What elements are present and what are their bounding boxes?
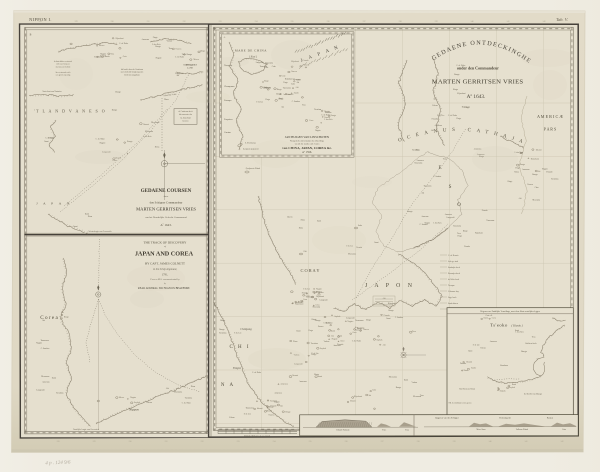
- svg-text:Langezaki: Langezaki: [320, 299, 328, 302]
- svg-text:Firando: Firando: [460, 363, 466, 365]
- svg-text:Oki: Oki: [304, 251, 307, 253]
- svg-text:Kijnokuni: Kijnokuni: [316, 296, 324, 298]
- svg-text:( Kiusiu ): ( Kiusiu ): [511, 324, 522, 328]
- svg-text:Duitsche Mijlen 15 in een Graa: Duitsche Mijlen 15 in een Graad: [244, 436, 270, 438]
- svg-text:I. dos Reis: I. dos Reis: [143, 136, 152, 138]
- svg-text:Fingo: Fingo: [283, 81, 287, 84]
- svg-text:Bingo: Bingo: [366, 319, 371, 322]
- svg-text:Bingo: Bingo: [64, 316, 69, 319]
- svg-text:Aki: Aki: [383, 344, 386, 347]
- svg-text:Vaste kust van Tartarien: Vaste kust van Tartarien: [42, 91, 61, 93]
- svg-text:Firando: Firando: [302, 292, 308, 294]
- svg-text:Eiland Fatsisio: Eiland Fatsisio: [336, 430, 350, 432]
- svg-text:Meaxuma: Meaxuma: [151, 122, 159, 124]
- svg-text:Itami: Itami: [317, 221, 321, 223]
- svg-text:COMPAGNIES: COMPAGNIES: [183, 64, 198, 67]
- svg-text:Sado: Sado: [358, 225, 362, 227]
- svg-text:Xima: Xima: [514, 172, 519, 174]
- svg-text:Xima: Xima: [299, 227, 303, 229]
- svg-text:Fokjen: Fokjen: [232, 366, 242, 370]
- svg-text:Amacusa: Amacusa: [42, 380, 50, 383]
- svg-text:Kusten: Kusten: [547, 418, 554, 420]
- svg-text:F. de Lio: F. de Lio: [473, 344, 480, 346]
- svg-text:Itami: Itami: [331, 330, 336, 332]
- svg-text:Vertoning der: Vertoning der: [499, 417, 511, 420]
- svg-text:Vulcan: Vulcan: [146, 402, 152, 404]
- svg-text:Itami: Itami: [468, 351, 472, 353]
- svg-text:136: 136: [345, 441, 348, 443]
- svg-text:C. de Nabo: C. de Nabo: [45, 138, 54, 140]
- svg-text:Tanaxuma: Tanaxuma: [283, 87, 291, 89]
- svg-text:137: 137: [363, 21, 366, 23]
- svg-text:MARTEN GERRITSEN VRIES: MARTEN GERRITSEN VRIES: [432, 79, 524, 86]
- svg-text:C. de Nabo: C. de Nabo: [252, 372, 261, 374]
- svg-text:Tacatima: Tacatima: [314, 109, 321, 111]
- svg-text:Meaxuma: Meaxuma: [348, 253, 356, 255]
- svg-text:Meaxuma: Meaxuma: [41, 376, 49, 378]
- svg-text:Vulcan: Vulcan: [324, 341, 330, 343]
- svg-text:Quelpaerts Eiland: Quelpaerts Eiland: [246, 168, 260, 170]
- svg-text:Bingo: Bingo: [285, 411, 290, 414]
- svg-text:Tosa: Tosa: [302, 104, 306, 106]
- svg-text:Xima: Xima: [88, 216, 93, 218]
- svg-text:Meac Sima: Meac Sima: [476, 429, 485, 431]
- svg-text:Idzumi: Idzumi: [143, 124, 149, 126]
- svg-text:de Witte hoek: de Witte hoek: [448, 279, 459, 281]
- svg-text:Nagato: Nagato: [99, 141, 105, 144]
- svg-text:Nagato: Nagato: [316, 287, 322, 290]
- svg-text:Fingo: Fingo: [457, 117, 462, 120]
- svg-text:Chekjang: Chekjang: [240, 327, 252, 331]
- svg-text:139: 139: [453, 441, 456, 443]
- svg-text:Aki: Aki: [433, 97, 436, 100]
- svg-text:J A P O N: J A P O N: [365, 283, 415, 289]
- svg-text:O: O: [457, 203, 461, 208]
- svg-text:Itami: Itami: [374, 242, 378, 244]
- svg-text:C. de Nabo: C. de Nabo: [96, 138, 105, 140]
- svg-text:Langezaki: Langezaki: [346, 317, 355, 320]
- svg-text:F. de Lio: F. de Lio: [311, 353, 318, 355]
- svg-text:Xima: Xima: [325, 323, 330, 325]
- svg-text:Tanaxuma: Tanaxuma: [486, 220, 494, 222]
- svg-text:door: door: [164, 195, 169, 198]
- svg-text:Kijnokuni: Kijnokuni: [457, 93, 466, 95]
- svg-text:133: 133: [219, 21, 222, 23]
- svg-text:Sanduijts hoek: Sanduijts hoek: [448, 267, 460, 269]
- svg-text:Osacca: Osacca: [318, 326, 324, 328]
- svg-text:Amacusa: Amacusa: [522, 168, 530, 171]
- svg-text:Tacatima: Tacatima: [185, 397, 192, 399]
- svg-text:Tacatima: Tacatima: [324, 112, 331, 114]
- svg-text:135: 135: [309, 441, 312, 443]
- svg-text:Itami: Itami: [279, 98, 283, 100]
- svg-text:Sando: Sando: [294, 93, 299, 95]
- svg-text:Bungo: Bungo: [112, 109, 117, 112]
- svg-text:Cava: Cava: [492, 318, 496, 320]
- svg-text:Bungo: Bungo: [187, 53, 192, 56]
- svg-text:E: E: [438, 166, 441, 171]
- svg-text:Saykok: Saykok: [134, 402, 140, 404]
- svg-text:Firando: Firando: [270, 406, 276, 408]
- svg-text:Bingo: Bingo: [220, 319, 225, 322]
- svg-text:Saykok: Saykok: [509, 387, 515, 389]
- svg-text:Kijnokuni: Kijnokuni: [388, 303, 396, 305]
- svg-text:Nippon: Nippon: [128, 408, 139, 412]
- svg-text:130: 130: [129, 441, 132, 443]
- svg-text:C. Sumbor: C. Sumbor: [419, 224, 428, 226]
- svg-text:Westerlengte van Greenwich: Westerlengte van Greenwich: [88, 230, 111, 233]
- svg-text:Amacusa: Amacusa: [445, 213, 452, 216]
- svg-text:Wegens eene Zuidelijke Verzeil: Wegens eene Zuidelijke Verzeilinge, moet…: [480, 310, 540, 313]
- svg-text:F. de Lio: F. de Lio: [437, 115, 444, 117]
- svg-text:( Kust ): ( Kust ): [249, 56, 257, 59]
- svg-text:Aº 1596.: Aº 1596.: [302, 151, 312, 154]
- svg-text:S: S: [449, 185, 452, 190]
- svg-text:Itami: Itami: [44, 141, 49, 143]
- svg-text:Langezaki: Langezaki: [256, 61, 264, 64]
- svg-text:Cava: Cava: [352, 332, 356, 334]
- svg-text:Bungo: Bungo: [532, 173, 537, 176]
- svg-text:I. dos Reis: I. dos Reis: [433, 223, 441, 225]
- svg-text:Bingo: Bingo: [314, 373, 319, 376]
- svg-text:van het Noordelijke Gedeelte C: van het Noordelijke Gedeelte Comanavand: [145, 216, 187, 219]
- svg-text:Meaco: Meaco: [119, 397, 124, 399]
- svg-text:Bungo: Bungo: [454, 73, 459, 76]
- svg-text:Idzumi: Idzumi: [536, 150, 542, 152]
- svg-text:Itami: Itami: [515, 330, 519, 332]
- svg-text:140: 140: [489, 441, 492, 443]
- svg-text:Bingo: Bingo: [200, 49, 205, 52]
- svg-text:Chanquam: Chanquam: [224, 85, 234, 88]
- svg-text:132: 132: [183, 21, 186, 23]
- svg-text:Idzumi: Idzumi: [466, 362, 472, 364]
- svg-text:Boomtjes hoek: Boomtjes hoek: [448, 273, 460, 275]
- svg-text:Goto: Goto: [372, 389, 376, 391]
- svg-text:Aki: Aki: [296, 81, 299, 84]
- svg-text:Amacusa: Amacusa: [490, 340, 497, 343]
- svg-text:C. de Nabo: C. de Nabo: [182, 402, 191, 404]
- svg-text:Nagato: Nagato: [130, 396, 136, 399]
- svg-text:Osacca: Osacca: [287, 217, 293, 219]
- svg-text:Goto: Goto: [281, 75, 285, 77]
- svg-text:Bungo: Bungo: [396, 386, 401, 389]
- svg-text:Fingo: Fingo: [458, 234, 462, 237]
- svg-text:Aki: Aki: [42, 319, 45, 322]
- svg-text:Tacatima: Tacatima: [311, 343, 318, 345]
- svg-text:Amacusa: Amacusa: [299, 380, 307, 383]
- svg-text:F. de Lio: F. de Lio: [234, 332, 241, 334]
- svg-text:C O R A Y: C O R A Y: [300, 268, 320, 273]
- svg-text:Firando: Firando: [482, 210, 488, 212]
- svg-text:131: 131: [147, 21, 150, 23]
- svg-text:'T L A N D V A N E S O: 'T L A N D V A N E S O: [34, 109, 106, 114]
- svg-text:Vulcan: Vulcan: [412, 382, 418, 384]
- svg-text:N A: N A: [221, 383, 235, 388]
- svg-text:Foquiem: Foquiem: [224, 118, 233, 121]
- svg-text:Amacusa: Amacusa: [142, 38, 150, 41]
- svg-text:J A P A N: J A P A N: [36, 202, 72, 206]
- svg-text:C. de Kennis: C. de Kennis: [448, 255, 459, 257]
- svg-text:Van Diemens Straat: Van Diemens Straat: [459, 389, 475, 391]
- svg-text:Aº 1643.: Aº 1643.: [160, 223, 171, 227]
- svg-text:Itami: Itami: [512, 384, 517, 386]
- svg-text:Nagato: Nagato: [542, 168, 548, 171]
- svg-text:Meaco: Meaco: [194, 59, 199, 61]
- svg-text:139: 139: [435, 21, 438, 23]
- svg-text:Bungo: Bungo: [331, 114, 336, 117]
- svg-text:Aki: Aki: [280, 404, 283, 407]
- svg-text:Nagato: Nagato: [274, 400, 280, 403]
- svg-text:C. Sumbor: C. Sumbor: [395, 317, 404, 319]
- svg-text:Langezaki: Langezaki: [36, 389, 45, 392]
- svg-text:Amacusa: Amacusa: [434, 124, 442, 127]
- svg-text:Nagato: Nagato: [315, 129, 321, 132]
- svg-text:Firando: Firando: [546, 172, 552, 174]
- svg-text:Cava: Cava: [309, 120, 313, 122]
- svg-text:4 p . 124 9/6: 4 p . 124 9/6: [45, 461, 71, 467]
- svg-text:Saykok: Saykok: [334, 316, 340, 318]
- svg-text:128: 128: [39, 21, 42, 23]
- svg-text:135: 135: [291, 21, 294, 23]
- svg-text:JAN HUIGEN VAN LINSCHOTEN: JAN HUIGEN VAN LINSCHOTEN: [285, 135, 330, 139]
- svg-text:Aki: Aki: [383, 297, 386, 300]
- svg-text:C H I: C H I: [229, 345, 250, 350]
- svg-text:F. de Lio: F. de Lio: [244, 414, 251, 416]
- svg-text:Goto: Goto: [562, 429, 566, 431]
- svg-text:Bingo: Bingo: [463, 229, 468, 232]
- svg-text:Amacusa: Amacusa: [421, 215, 428, 218]
- svg-text:Xima: Xima: [293, 341, 298, 343]
- svg-text:Xima: Xima: [301, 219, 305, 221]
- svg-text:Kijnokuni: Kijnokuni: [354, 396, 363, 398]
- svg-text:P A R S: P A R S: [544, 127, 556, 132]
- svg-text:Osacca: Osacca: [268, 414, 274, 416]
- svg-text:Meaxuma: Meaxuma: [313, 307, 321, 309]
- svg-text:NB. de Zuidkust is niet gezien: NB. de Zuidkust is niet gezien: [449, 402, 472, 405]
- svg-text:Cantan: Cantan: [224, 131, 232, 134]
- svg-text:Itami: Itami: [387, 318, 391, 320]
- svg-text:bevaren: bevaren: [183, 121, 189, 123]
- svg-text:Xima: Xima: [463, 370, 468, 372]
- svg-text:Tosa: Tosa: [405, 429, 409, 431]
- svg-text:Fingo: Fingo: [264, 80, 269, 83]
- svg-text:THE TRACK OF DISCOVERY: THE TRACK OF DISCOVERY: [144, 241, 188, 245]
- svg-text:GEDAENE COURSEN: GEDAENE COURSEN: [141, 189, 192, 194]
- svg-text:14 Junij 1643: 14 Junij 1643: [180, 117, 190, 119]
- svg-text:C. de Nabo: C. de Nabo: [321, 115, 330, 117]
- svg-text:Osacca: Osacca: [291, 71, 297, 73]
- svg-text:Goto eil.: Goto eil.: [486, 315, 493, 317]
- svg-text:Itami: Itami: [73, 226, 78, 228]
- svg-text:Amacusa: Amacusa: [274, 392, 282, 395]
- svg-text:Oostelijke lengte van Greenwic: Oostelijke lengte van Greenwich: [73, 428, 99, 431]
- svg-text:Bingo: Bingo: [453, 88, 458, 91]
- svg-text:F. de Lio: F. de Lio: [256, 101, 263, 103]
- svg-text:Tanaxuma: Tanaxuma: [355, 320, 363, 322]
- svg-text:Meaxuma: Meaxuma: [293, 79, 301, 81]
- svg-text:I. Fermosa: I. Fermosa: [245, 142, 257, 145]
- svg-text:Aki: Aki: [519, 197, 522, 200]
- svg-text:Meaxuma: Meaxuma: [174, 391, 182, 393]
- svg-text:C. de Nabo: C. de Nabo: [175, 56, 184, 58]
- svg-text:Bingo: Bingo: [277, 88, 282, 91]
- svg-text:Tacatima: Tacatima: [219, 332, 226, 334]
- svg-text:133: 133: [237, 441, 240, 443]
- svg-text:Cava: Cava: [303, 299, 307, 301]
- svg-text:de Castricum heeft: de Castricum heeft: [178, 110, 193, 113]
- svg-text:Itami: Itami: [404, 379, 409, 381]
- svg-text:Fingo: Fingo: [465, 106, 470, 109]
- svg-text:Bungo: Bungo: [315, 319, 320, 322]
- svg-text:Idzumi: Idzumi: [350, 400, 356, 402]
- svg-text:140: 140: [471, 21, 474, 23]
- svg-text:Vulcan: Vulcan: [432, 105, 438, 107]
- svg-text:Bungo: Bungo: [127, 140, 132, 143]
- svg-text:Osacca: Osacca: [527, 184, 533, 186]
- svg-text:Vries: Vries: [382, 429, 386, 431]
- svg-text:Aº 1643.: Aº 1643.: [467, 94, 486, 100]
- svg-text:134: 134: [273, 441, 276, 443]
- svg-text:Tosa: Tosa: [110, 53, 114, 55]
- svg-text:Bungo: Bungo: [389, 309, 394, 312]
- svg-text:Itami: Itami: [318, 376, 323, 378]
- svg-text:C. Sumbor: C. Sumbor: [41, 348, 50, 350]
- svg-text:Tanaxuma: Tanaxuma: [40, 340, 48, 342]
- svg-text:Saykok: Saykok: [376, 340, 382, 342]
- svg-text:dit vaarwater den: dit vaarwater den: [179, 114, 192, 116]
- svg-text:Itami: Itami: [338, 335, 343, 337]
- svg-text:Tab. V.: Tab. V.: [556, 17, 569, 22]
- svg-text:Tosa: Tosa: [443, 159, 447, 161]
- svg-text:Lage hoek: Lage hoek: [448, 296, 456, 299]
- svg-text:Stichters hoek: Stichters hoek: [525, 343, 536, 345]
- svg-text:142: 142: [543, 21, 546, 23]
- svg-text:MARE DE CHINA: MARE DE CHINA: [235, 49, 267, 53]
- svg-text:I. dos Reis: I. dos Reis: [324, 119, 332, 121]
- svg-text:Aki: Aki: [421, 191, 424, 194]
- svg-text:Aki: Aki: [331, 335, 334, 338]
- svg-text:Tosa: Tosa: [412, 331, 416, 333]
- svg-text:Bungo: Bungo: [407, 210, 412, 213]
- svg-text:Amacusa: Amacusa: [333, 344, 341, 347]
- svg-text:Tosa: Tosa: [532, 337, 536, 339]
- svg-text:den Schipper Commandeur: den Schipper Commandeur: [150, 201, 183, 205]
- svg-text:Jedo gr. stad: Jedo gr. stad: [448, 260, 458, 263]
- svg-text:I. dos Reis: I. dos Reis: [516, 332, 524, 334]
- svg-text:Simabara: Simabara: [500, 365, 508, 367]
- svg-text:Tanaxuma: Tanaxuma: [424, 186, 432, 188]
- svg-text:de Bocht van Bungo: de Bocht van Bungo: [524, 393, 543, 396]
- svg-text:Nagato: Nagato: [100, 52, 106, 55]
- svg-text:Meaco: Meaco: [318, 292, 323, 294]
- svg-text:Amacusa: Amacusa: [355, 329, 363, 332]
- svg-text:C. de Nabo: C. de Nabo: [119, 43, 128, 45]
- svg-text:Xima: Xima: [164, 99, 169, 101]
- svg-text:Cabo: Cabo: [535, 187, 539, 189]
- svg-text:Meaco: Meaco: [99, 45, 104, 47]
- svg-text:Bungo: Bungo: [115, 91, 120, 94]
- svg-text:Westgedeelte uitvoerstaaken de: Westgedeelte uitvoerstaaken der Afbeeldi…: [290, 140, 324, 143]
- svg-text:Aki: Aki: [166, 387, 169, 390]
- svg-text:Kijnokuni: Kijnokuni: [285, 78, 293, 80]
- svg-text:Fingo: Fingo: [515, 167, 520, 170]
- svg-text:Vulcan: Vulcan: [229, 417, 235, 419]
- svg-text:C. de Nabo: C. de Nabo: [456, 65, 465, 67]
- svg-text:Vulkaan Eiland: Vulkaan Eiland: [516, 429, 528, 431]
- svg-text:Osacca: Osacca: [176, 48, 182, 50]
- svg-text:F. de Lio: F. de Lio: [303, 288, 310, 290]
- svg-text:Cabo: Cabo: [264, 87, 268, 89]
- svg-text:Cabo: Cabo: [264, 67, 268, 69]
- svg-text:Kijnokuni: Kijnokuni: [116, 38, 125, 40]
- svg-text:128: 128: [57, 441, 60, 443]
- svg-text:Tanaxuma: Tanaxuma: [453, 225, 461, 227]
- svg-text:Nagato: Nagato: [332, 337, 338, 340]
- svg-text:Tacatima: Tacatima: [551, 179, 558, 181]
- svg-text:A M E R I C Æ: A M E R I C Æ: [537, 114, 563, 119]
- svg-text:Aki: Aki: [431, 129, 434, 132]
- svg-text:C. de Nabo: C. de Nabo: [352, 341, 361, 343]
- svg-text:142: 142: [561, 441, 564, 443]
- svg-text:Amacusa: Amacusa: [280, 382, 288, 385]
- svg-text:137: 137: [381, 441, 384, 443]
- svg-text:Tanaxuma: Tanaxuma: [414, 163, 422, 165]
- svg-text:Meaxuma: Meaxuma: [389, 377, 397, 379]
- svg-text:Opgaven van den Schipper: Opgaven van den Schipper: [435, 417, 459, 420]
- svg-text:Firando: Firando: [432, 119, 438, 121]
- svg-text:134: 134: [255, 21, 258, 23]
- svg-text:132: 132: [201, 441, 204, 443]
- svg-text:129: 129: [93, 441, 96, 443]
- svg-text:doch niet aangedaan: doch niet aangedaan: [124, 73, 139, 76]
- svg-text:Kijnokuni: Kijnokuni: [531, 158, 540, 160]
- svg-text:Ts'eoko: Ts'eoko: [490, 323, 508, 328]
- svg-text:Sando: Sando: [471, 368, 476, 370]
- svg-text:Nagato: Nagato: [156, 56, 162, 59]
- svg-text:Sand duinen: Sand duinen: [448, 303, 458, 305]
- svg-text:Cabo: Cabo: [272, 66, 276, 68]
- svg-text:Bungo: Bungo: [219, 328, 224, 331]
- svg-text:Itami: Itami: [52, 378, 57, 380]
- svg-text:Nagato: Nagato: [36, 342, 42, 345]
- svg-text:op verscheide hoogten gezien: op verscheide hoogten gezien: [121, 71, 143, 74]
- svg-text:Itami: Itami: [297, 330, 301, 332]
- svg-text:Fingo: Fingo: [309, 329, 313, 332]
- svg-text:138: 138: [399, 21, 402, 23]
- svg-text:Firando: Firando: [464, 246, 470, 248]
- svg-text:Tosa: Tosa: [168, 48, 172, 50]
- svg-text:Tacatima: Tacatima: [412, 149, 419, 151]
- svg-text:C. Sumbor: C. Sumbor: [292, 101, 301, 103]
- svg-text:Vulcan: Vulcan: [166, 41, 172, 43]
- svg-text:Xima: Xima: [155, 147, 160, 149]
- svg-text:Meaxuma: Meaxuma: [533, 199, 541, 201]
- svg-text:Meaco: Meaco: [267, 410, 272, 412]
- svg-text:JAPAN AND COREA: JAPAN AND COREA: [135, 251, 194, 258]
- svg-text:Tosa: Tosa: [182, 54, 186, 56]
- svg-text:Suvo: Suvo: [340, 340, 344, 342]
- svg-text:Aki: Aki: [281, 106, 284, 109]
- svg-text:Bingo: Bingo: [508, 180, 513, 183]
- svg-text:B: B: [30, 34, 32, 37]
- svg-text:Itami: Itami: [85, 213, 90, 215]
- svg-text:129: 129: [75, 21, 78, 23]
- svg-text:Tanaxuma: Tanaxuma: [245, 407, 253, 409]
- svg-text:136: 136: [327, 21, 330, 23]
- svg-text:Itami: Itami: [484, 318, 489, 320]
- svg-text:Bungo: Bungo: [520, 163, 525, 166]
- svg-text:Goto: Goto: [123, 56, 127, 58]
